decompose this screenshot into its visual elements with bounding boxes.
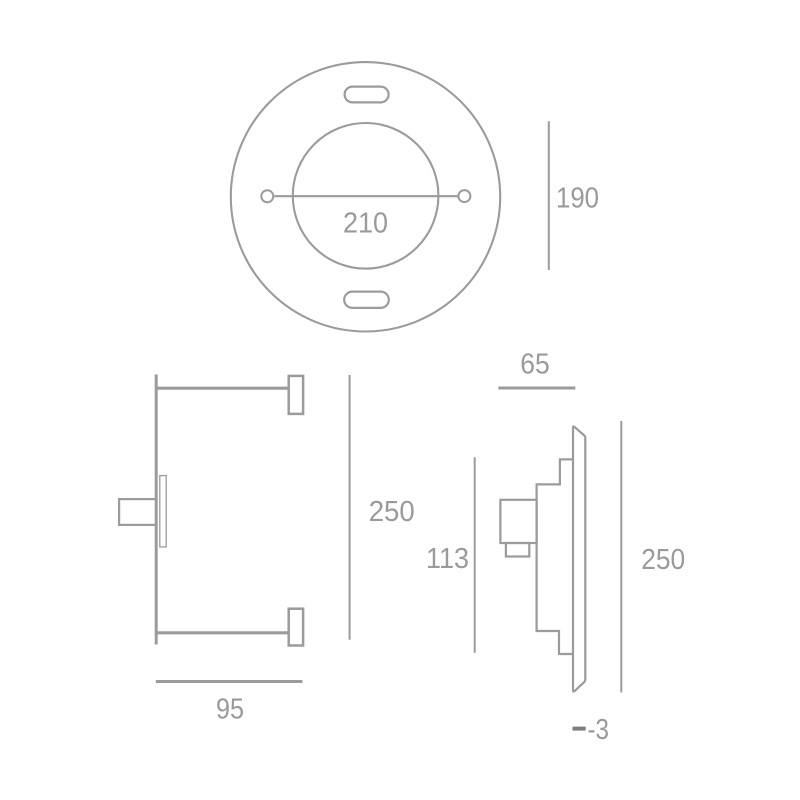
svg-text:210: 210 <box>343 208 388 240</box>
svg-text:95: 95 <box>216 694 244 726</box>
svg-text:65: 65 <box>520 349 550 381</box>
svg-text:113: 113 <box>426 543 469 575</box>
svg-text:250: 250 <box>369 496 415 528</box>
svg-text:250: 250 <box>641 544 685 576</box>
svg-text:-3: -3 <box>588 714 610 746</box>
svg-text:190: 190 <box>556 183 599 215</box>
